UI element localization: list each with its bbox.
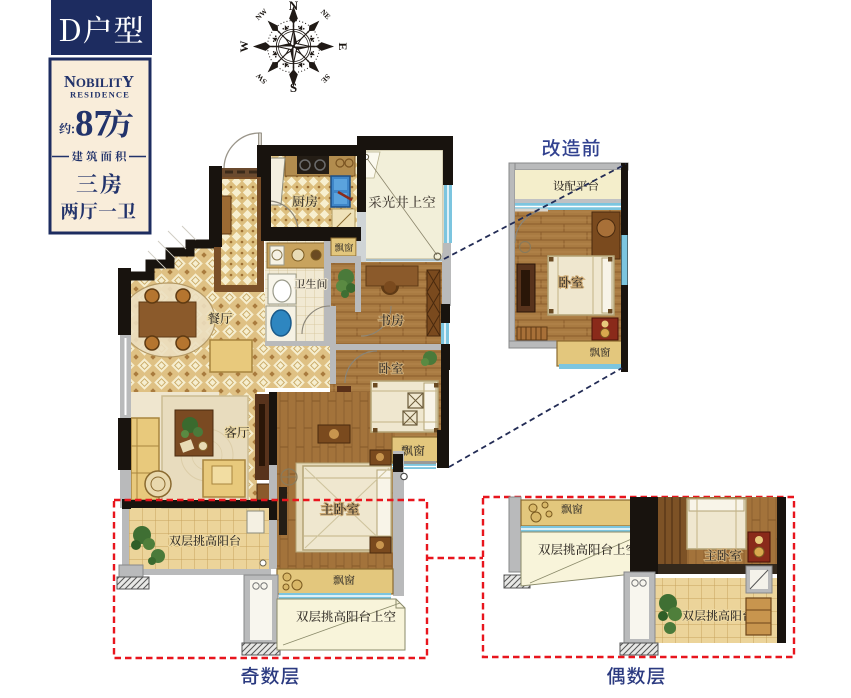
svg-text:S: S [290,80,297,95]
svg-text:N: N [289,0,299,13]
svg-text:RESIDENCE: RESIDENCE [70,90,130,100]
svg-text:E: E [336,42,350,50]
svg-text:NOBILITY: NOBILITY [64,72,134,91]
svg-text:W: W [237,41,251,53]
svg-text:87: 87 [75,104,112,145]
